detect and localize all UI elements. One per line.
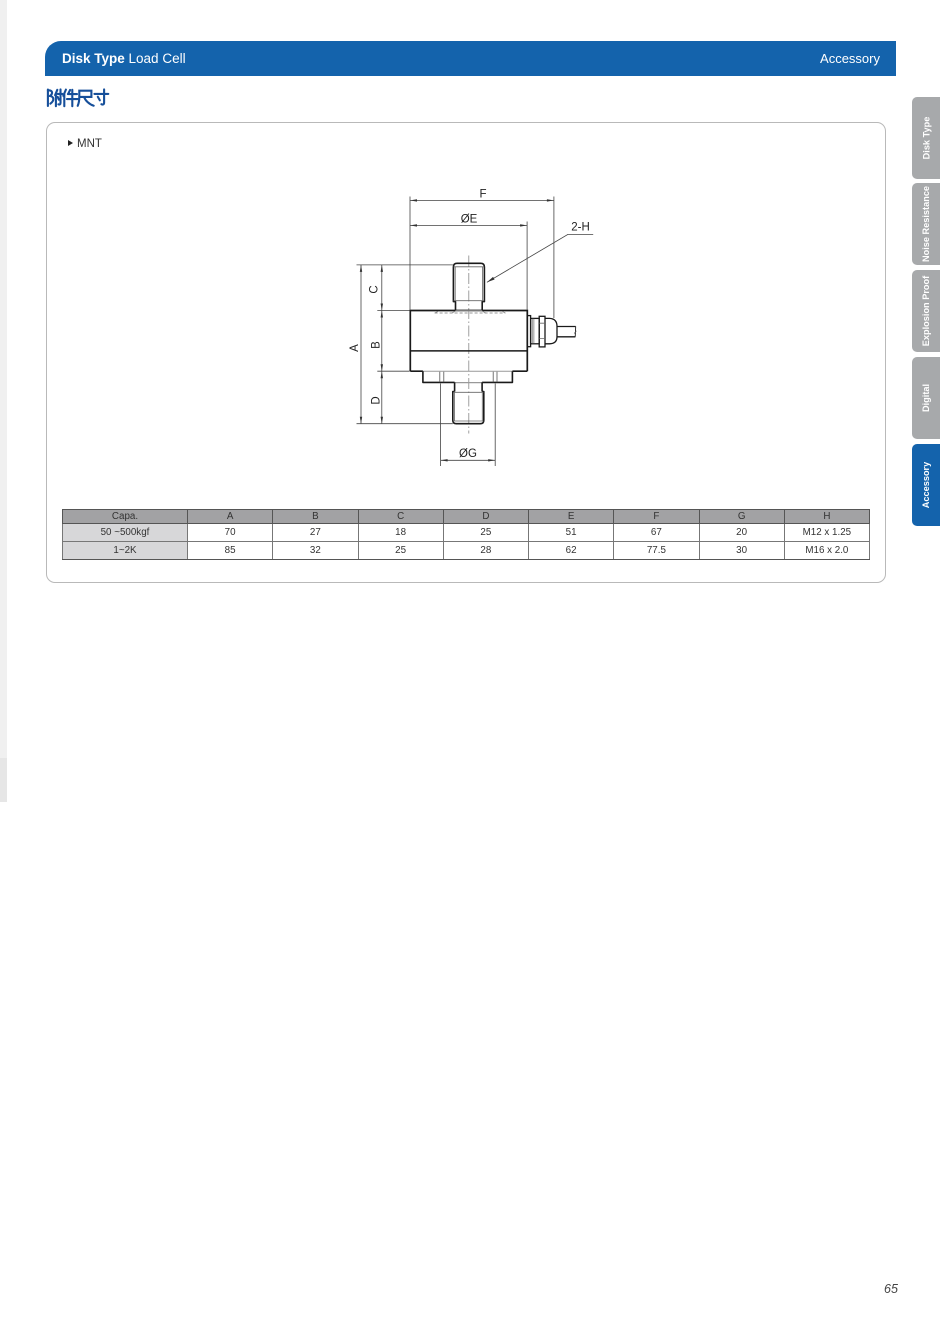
svg-text:A: A — [349, 344, 361, 352]
svg-text:ØE: ØE — [461, 213, 478, 225]
svg-text:2-H: 2-H — [571, 221, 590, 233]
svg-text:F: F — [479, 188, 486, 200]
svg-text:C: C — [368, 285, 380, 293]
svg-text:B: B — [370, 341, 382, 349]
svg-text:D: D — [370, 396, 382, 404]
svg-text:ØG: ØG — [459, 448, 477, 460]
